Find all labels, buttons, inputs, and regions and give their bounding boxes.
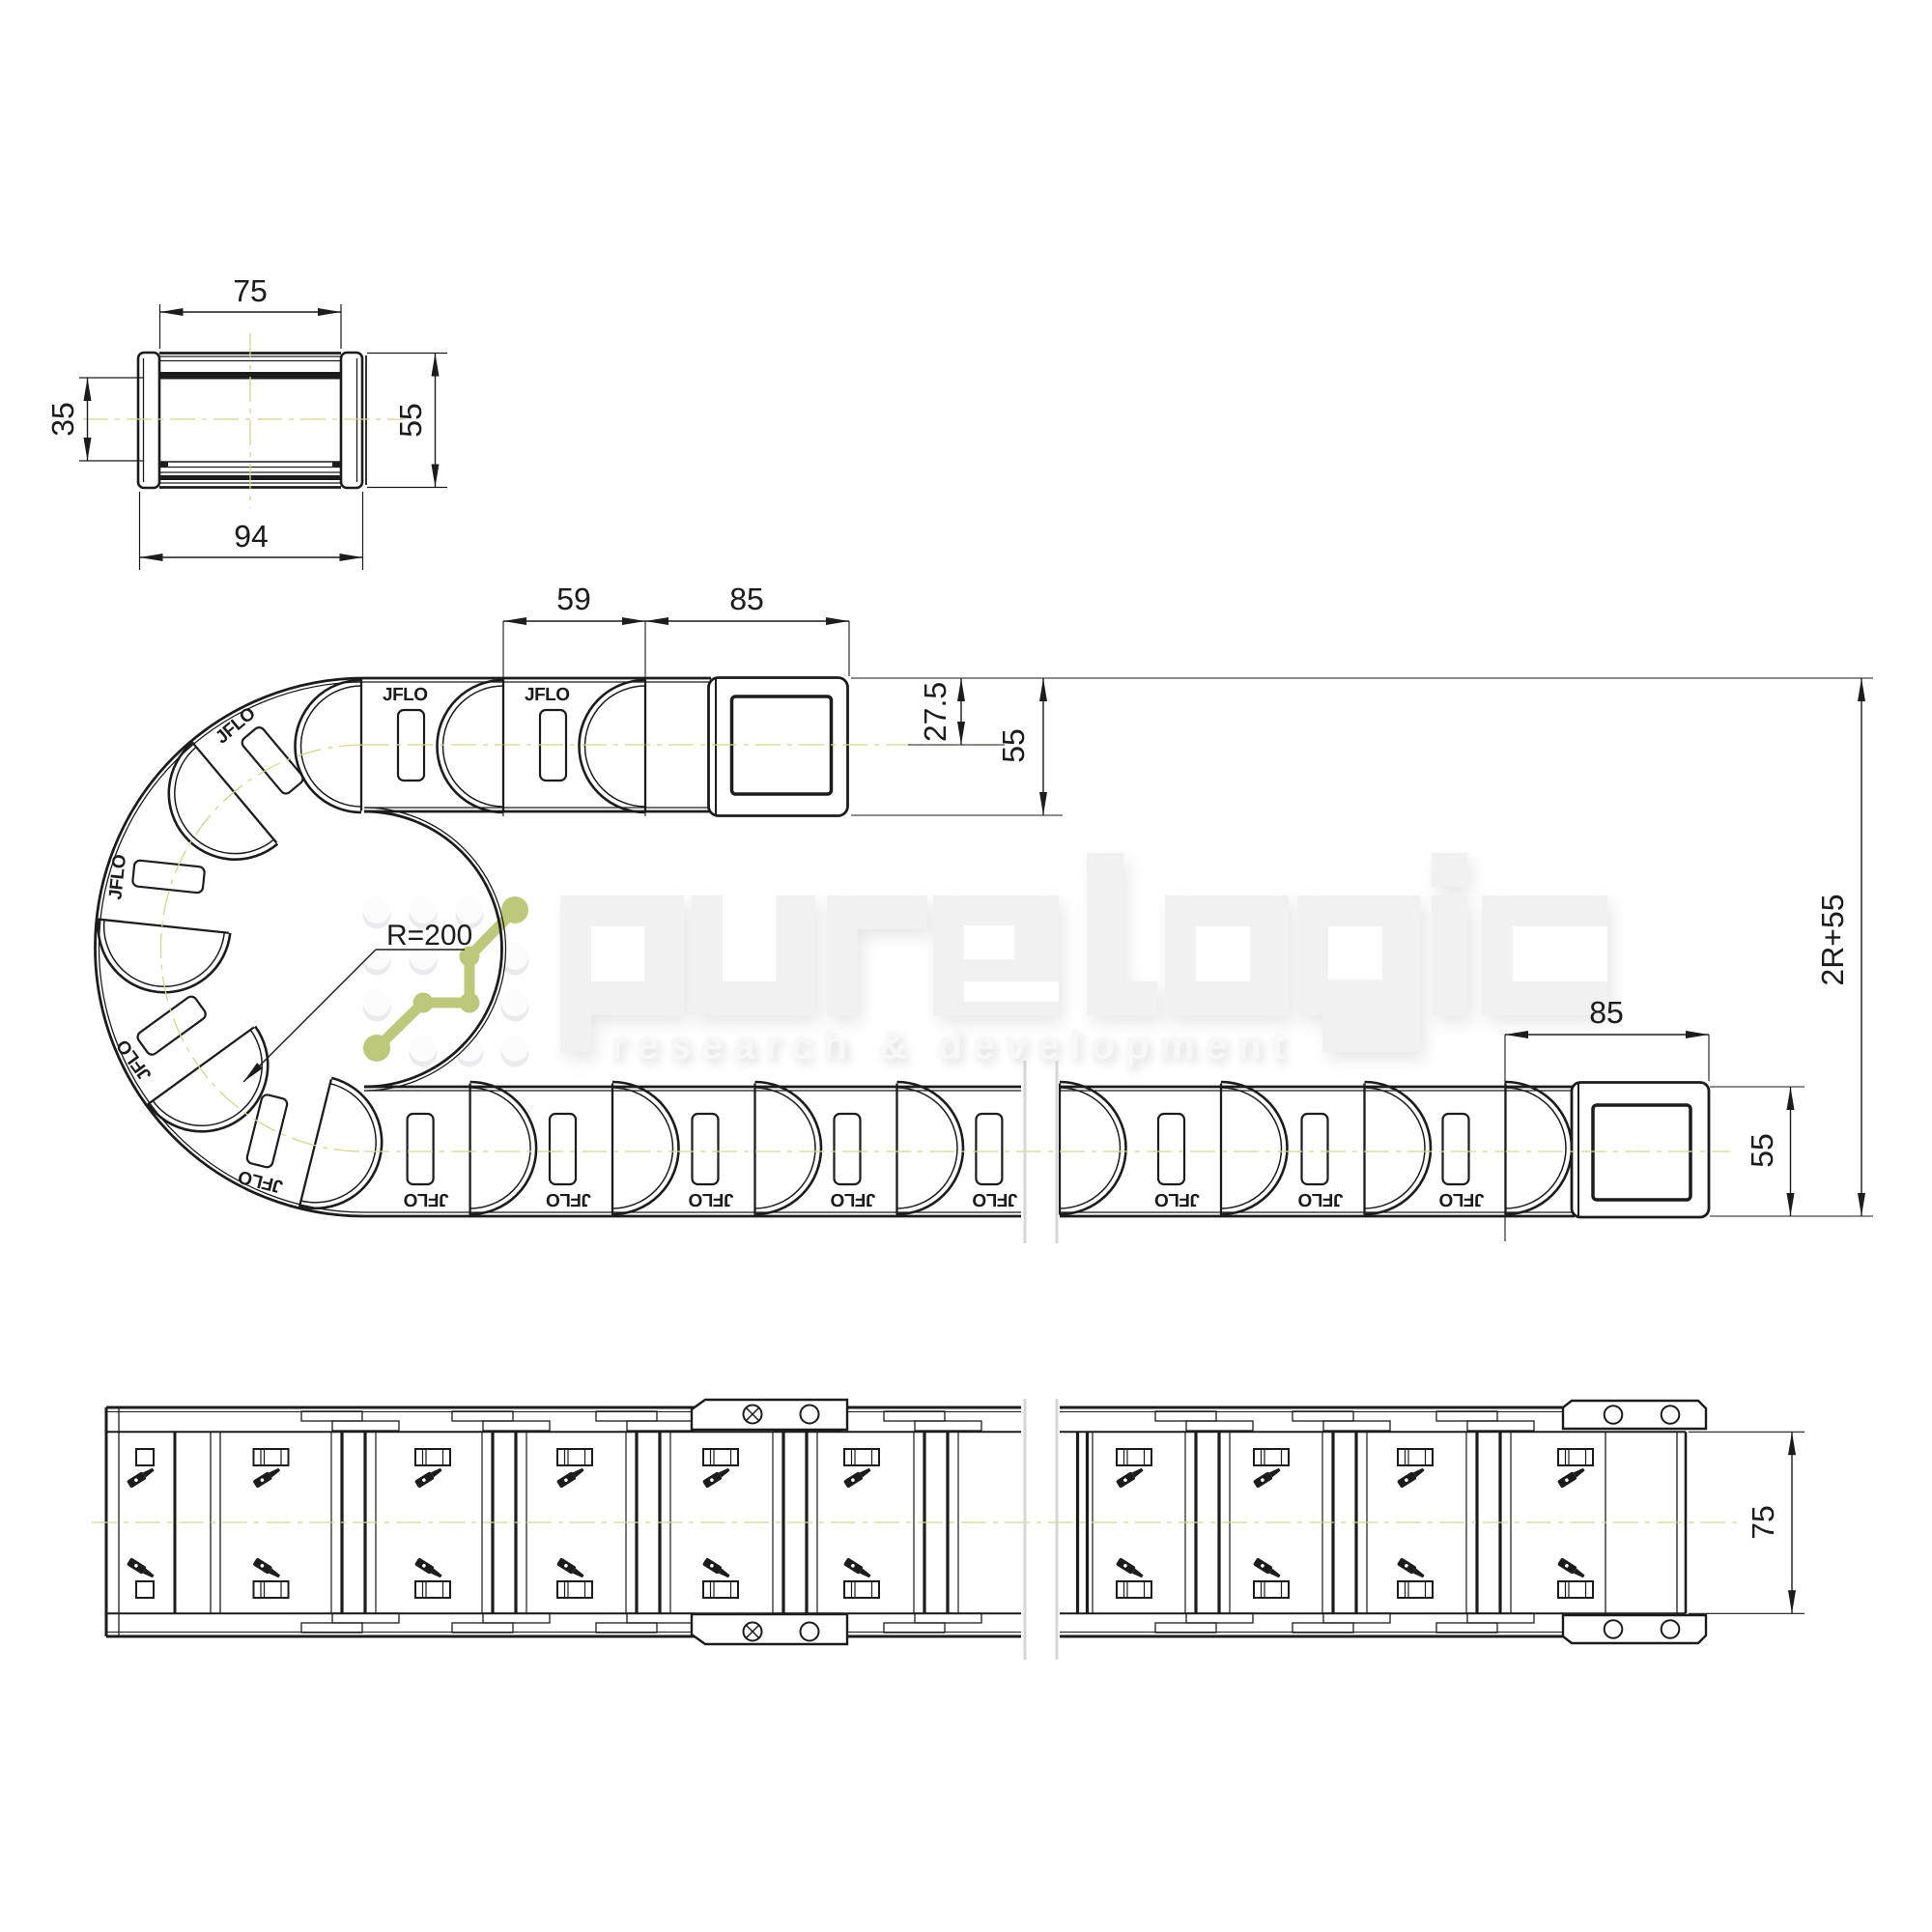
svg-text:55: 55 [393, 403, 428, 438]
svg-text:JFLO: JFLO [689, 1189, 734, 1209]
svg-text:85: 85 [1589, 995, 1624, 1030]
svg-text:75: 75 [233, 273, 268, 308]
svg-text:JFLO: JFLO [1439, 1189, 1485, 1209]
svg-text:75: 75 [1746, 1505, 1780, 1540]
svg-text:94: 94 [234, 519, 269, 554]
svg-text:JFLO: JFLO [546, 1189, 591, 1209]
svg-text:35: 35 [45, 402, 80, 437]
svg-text:JFLO: JFLO [404, 1189, 449, 1209]
svg-text:2R+55: 2R+55 [1815, 894, 1850, 985]
svg-text:JFLO: JFLO [525, 685, 570, 705]
svg-text:JFLO: JFLO [1298, 1189, 1344, 1209]
svg-text:JFLO: JFLO [973, 1189, 1018, 1209]
svg-text:JFLO: JFLO [383, 685, 428, 705]
svg-text:55: 55 [1745, 1133, 1779, 1168]
svg-text:55: 55 [996, 728, 1031, 763]
svg-text:JFLO: JFLO [831, 1189, 876, 1209]
svg-text:27.5: 27.5 [918, 682, 952, 742]
svg-text:R=200: R=200 [386, 920, 472, 952]
svg-text:research & development: research & development [611, 1022, 1294, 1067]
svg-text:85: 85 [729, 582, 764, 616]
svg-text:JFLO: JFLO [1154, 1189, 1200, 1209]
svg-text:59: 59 [556, 582, 591, 616]
